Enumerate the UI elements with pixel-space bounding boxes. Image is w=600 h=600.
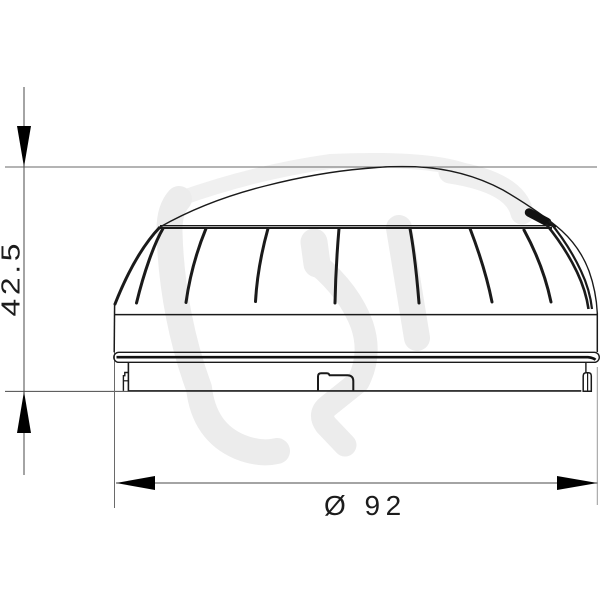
svg-text:42.5: 42.5 <box>0 240 26 317</box>
svg-text:Ø 92: Ø 92 <box>324 490 407 521</box>
